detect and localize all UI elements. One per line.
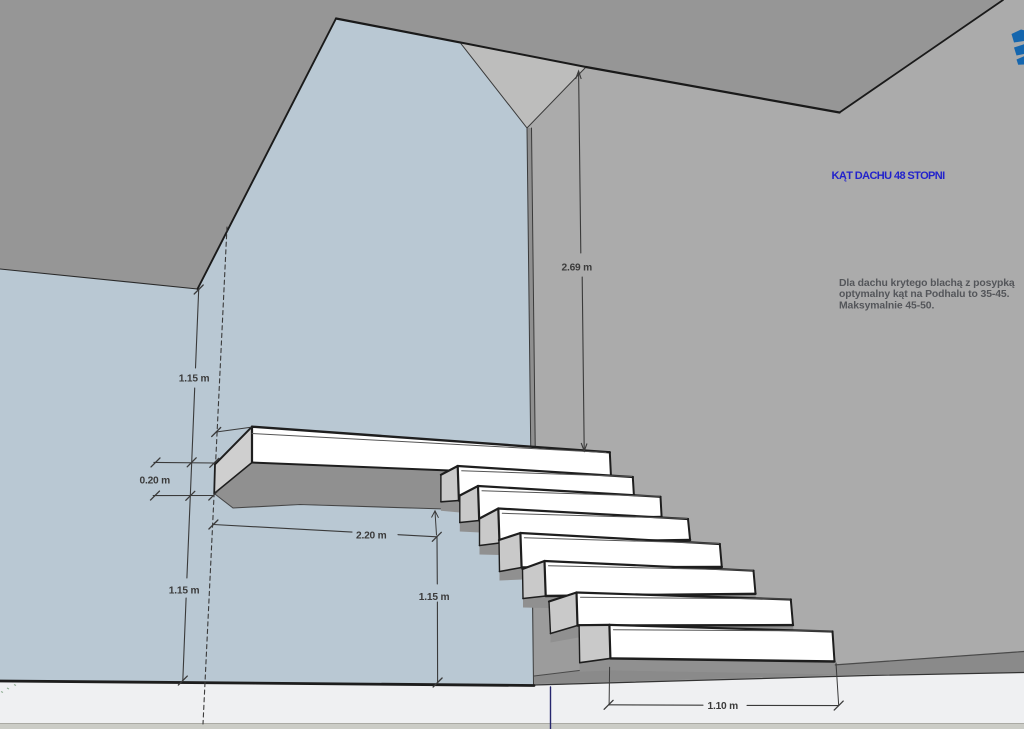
svg-text:0.20 m: 0.20 m (140, 476, 171, 487)
svg-text:1.10 m: 1.10 m (708, 701, 739, 712)
svg-text:Maksymalnie 45-50.: Maksymalnie 45-50. (839, 300, 934, 311)
svg-text:optymalny kąt na Podhalu to 35: optymalny kąt na Podhalu to 35-45. (839, 289, 1010, 300)
svg-text:1.15 m: 1.15 m (169, 586, 200, 597)
svg-text:1.15 m: 1.15 m (419, 592, 450, 603)
svg-text:2.20 m: 2.20 m (356, 531, 387, 542)
svg-text:1.15 m: 1.15 m (179, 374, 210, 385)
svg-text:Dla dachu krytego blachą z pos: Dla dachu krytego blachą z posypką (839, 278, 1015, 289)
svg-text:2.69 m: 2.69 m (562, 263, 593, 274)
svg-text:KĄT DACHU 48 STOPNI: KĄT DACHU 48 STOPNI (832, 170, 946, 182)
